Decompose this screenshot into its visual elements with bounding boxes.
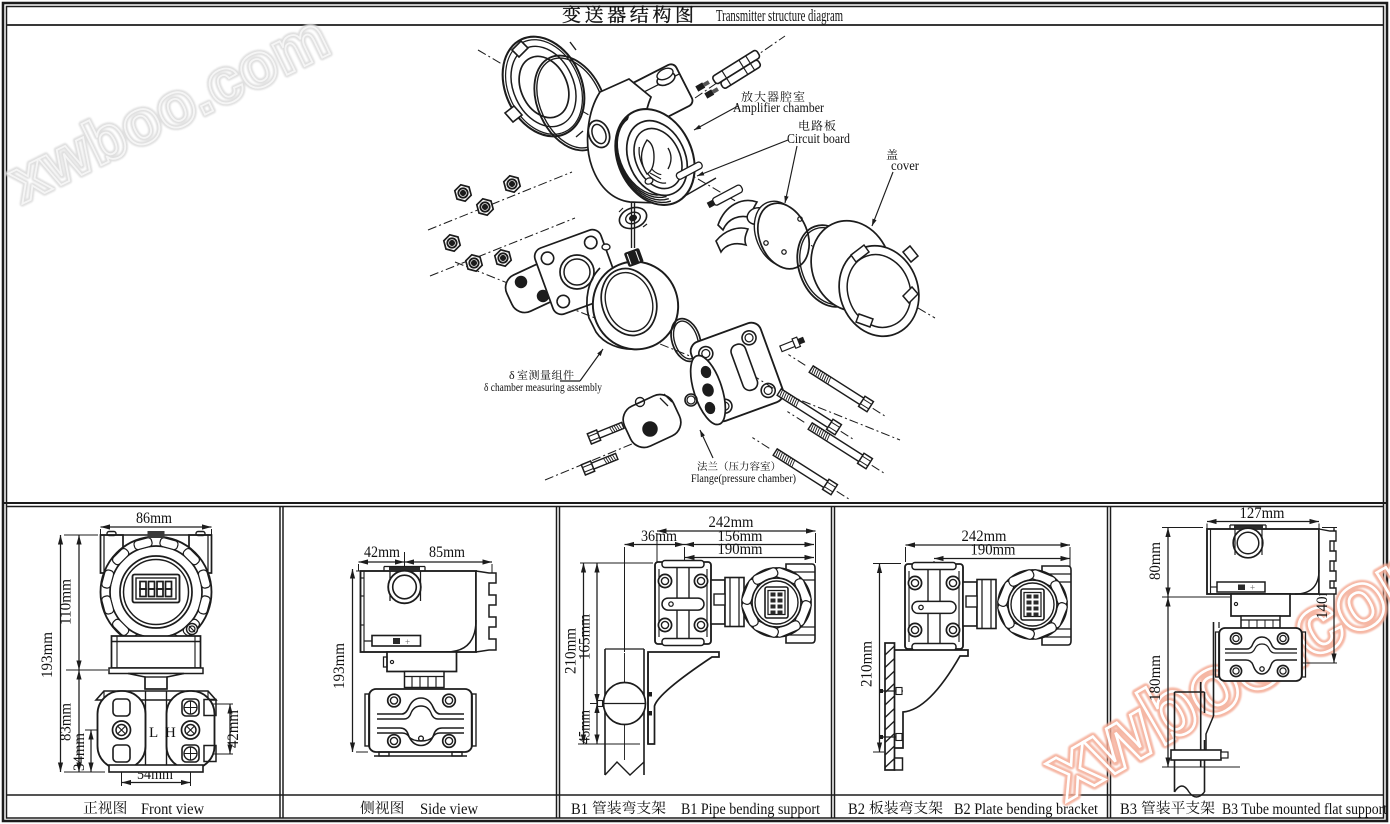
svg-text:85mm: 85mm <box>429 544 465 561</box>
svg-text:Flange(pressure chamber): Flange(pressure chamber) <box>691 471 796 485</box>
svg-text:+: + <box>1250 583 1255 593</box>
svg-text:36mm: 36mm <box>641 528 677 545</box>
svg-text:Circuit board: Circuit board <box>787 131 850 146</box>
svg-text:110mm: 110mm <box>58 579 75 625</box>
svg-text:B3 Tube mounted flat support: B3 Tube mounted flat support <box>1222 801 1388 818</box>
svg-text:86mm: 86mm <box>136 510 172 527</box>
svg-text:193mm: 193mm <box>39 632 56 678</box>
svg-text:42mm: 42mm <box>225 710 242 748</box>
svg-text:190mm: 190mm <box>718 541 763 558</box>
svg-text:B2: B2 <box>848 801 865 818</box>
svg-text:Amplifier chamber: Amplifier chamber <box>733 100 824 115</box>
svg-text:42mm: 42mm <box>364 544 400 561</box>
svg-text:cover: cover <box>891 158 919 173</box>
svg-text:80mm: 80mm <box>1147 542 1164 580</box>
svg-text:δ chamber measuring assembly: δ chamber measuring assembly <box>484 380 602 394</box>
svg-text:+: + <box>405 637 410 647</box>
svg-text:34mm: 34mm <box>71 733 88 771</box>
svg-text:165mm: 165mm <box>577 614 594 660</box>
svg-text:Side view: Side view <box>420 801 479 818</box>
svg-text:210mm: 210mm <box>859 641 876 687</box>
svg-text:L: L <box>149 725 158 741</box>
svg-text:Front view: Front view <box>141 801 205 818</box>
svg-text:180mm: 180mm <box>1147 655 1164 701</box>
svg-text:127mm: 127mm <box>1240 505 1285 522</box>
svg-text:B2 Plate bending bracket: B2 Plate bending bracket <box>954 801 1099 818</box>
svg-text:B3: B3 <box>1120 801 1137 818</box>
svg-text:193mm: 193mm <box>331 643 348 689</box>
svg-text:190mm: 190mm <box>971 542 1016 559</box>
svg-text:45mm: 45mm <box>577 710 594 744</box>
svg-text:B1: B1 <box>571 801 588 818</box>
svg-text:Transmitter structure diagram: Transmitter structure diagram <box>716 6 843 25</box>
svg-text:H: H <box>165 725 176 741</box>
svg-text:B1 Pipe bending support: B1 Pipe bending support <box>681 801 821 818</box>
